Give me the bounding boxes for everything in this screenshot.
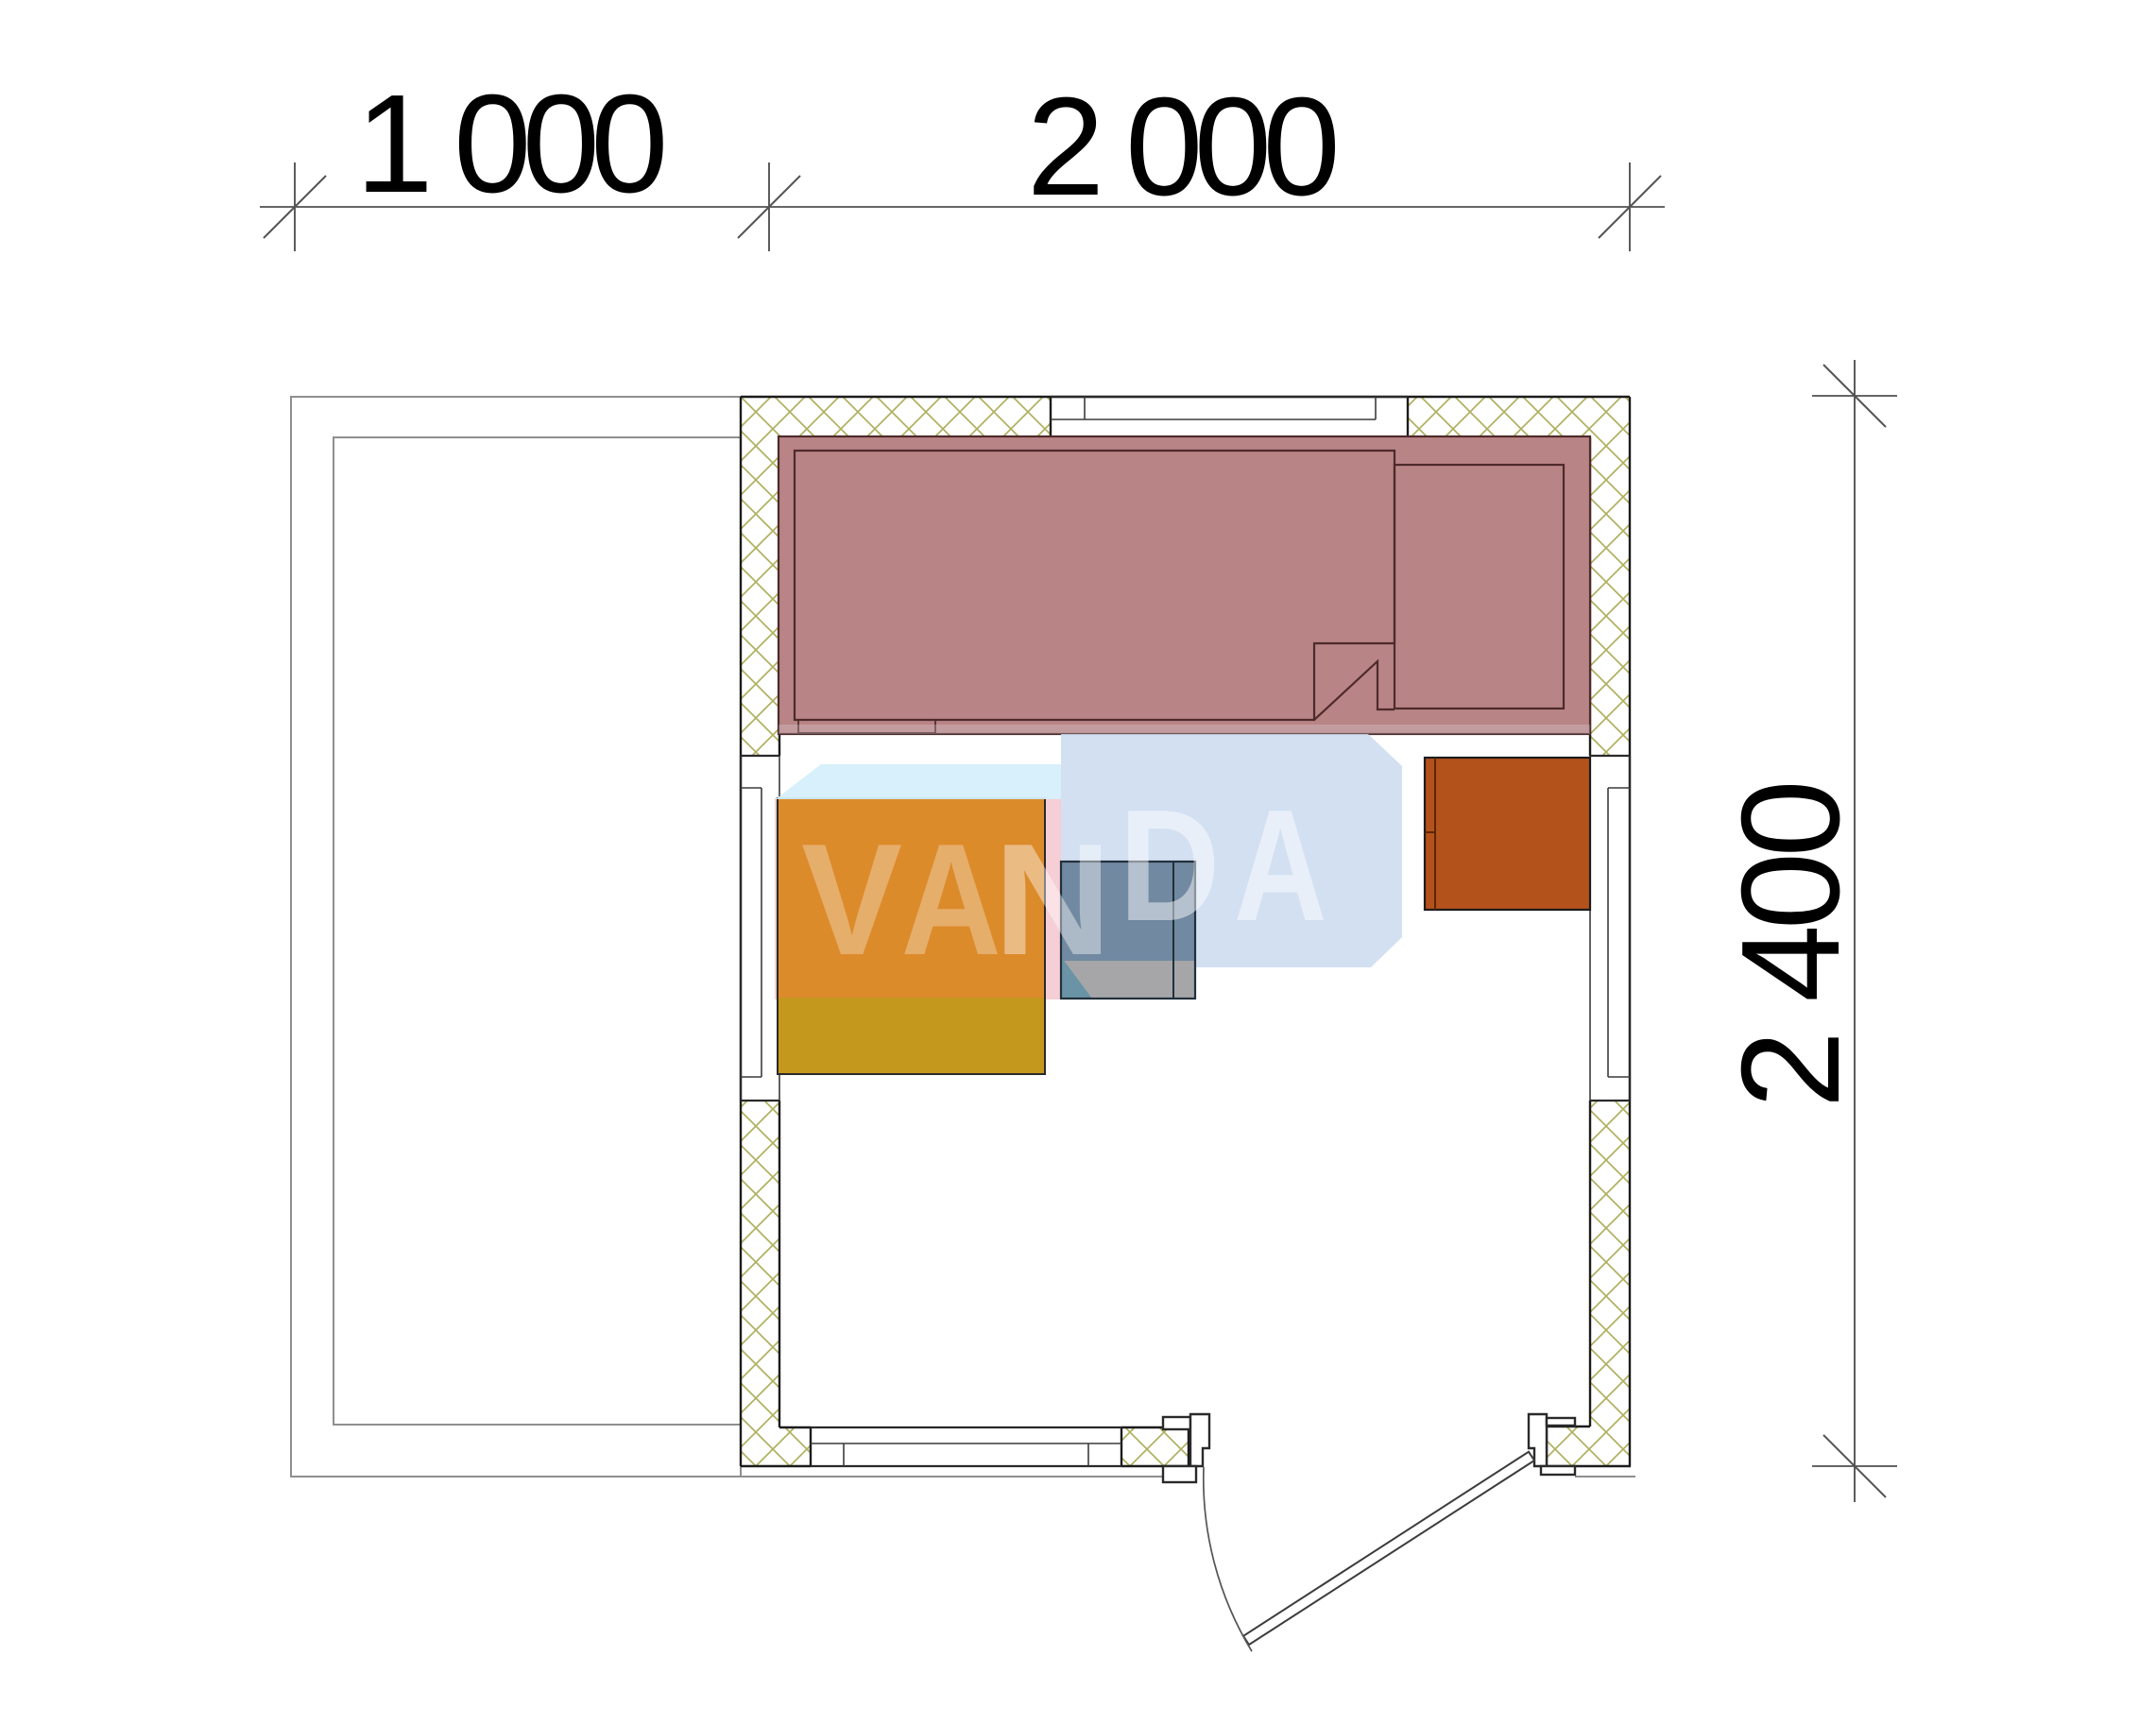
svg-text:N: N [994,811,1112,988]
svg-text:2 400: 2 400 [1713,785,1869,1109]
svg-text:A: A [901,811,1001,988]
svg-text:D: D [1119,777,1220,954]
svg-text:1 000: 1 000 [355,66,663,222]
svg-text:V: V [801,811,902,988]
svg-text:A: A [1234,777,1327,955]
svg-text:2 000: 2 000 [1027,69,1336,225]
